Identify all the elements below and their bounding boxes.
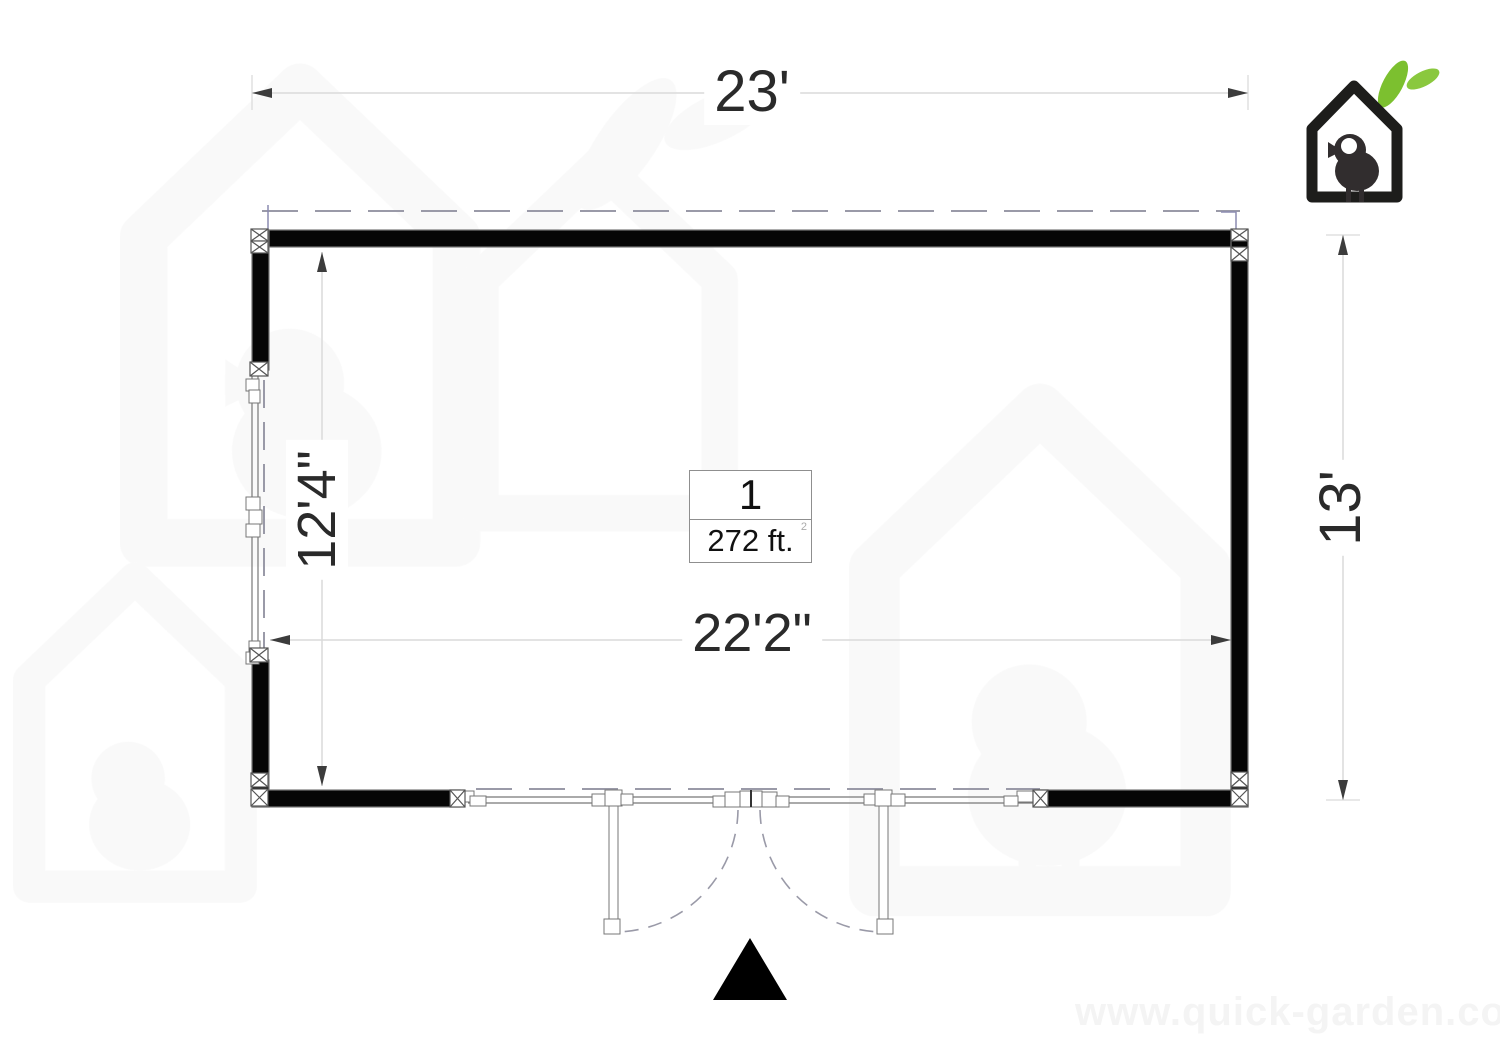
dimension-overall-depth: 13': [1308, 460, 1374, 556]
background-watermark: [29, 64, 1205, 909]
leaf-icon-small: [1404, 64, 1443, 94]
dimension-overall-width: 23': [704, 59, 800, 125]
post-window-top: [250, 362, 268, 376]
room-area-superscript: 2: [801, 521, 807, 533]
room-label-table: 1 272 ft. 2: [689, 470, 812, 563]
post-window-bottom: [250, 648, 268, 662]
post-front-left: [450, 790, 465, 807]
dimension-interior-depth: 12'4": [286, 440, 348, 580]
post-bottom-right: [1231, 772, 1248, 806]
door-leaf-left: [609, 806, 618, 922]
room-number: 1: [690, 471, 811, 520]
birdhouse-logo: [1312, 56, 1442, 202]
site-url-watermark: www.quick-garden.co.uk: [1075, 990, 1475, 1035]
right-wall: [1231, 230, 1248, 807]
post-top-left: [251, 229, 268, 253]
floor-plan-page: 23' 13' 12'4" 22'2" 1 272 ft. 2 www.quic…: [0, 0, 1500, 1060]
post-bottom-left: [251, 773, 268, 806]
entrance-arrow: [713, 938, 787, 1000]
door-leaf-right: [879, 806, 888, 922]
bottom-wall-right: [1035, 790, 1248, 807]
post-front-right: [1033, 790, 1048, 807]
door-swing-arc-left: [616, 810, 738, 932]
bottom-wall-left: [252, 790, 460, 807]
room-area: 272 ft. 2: [690, 520, 811, 562]
logo-bird-eye: [1341, 138, 1357, 154]
top-wall: [252, 230, 1248, 247]
dimension-interior-width: 22'2": [682, 602, 822, 664]
